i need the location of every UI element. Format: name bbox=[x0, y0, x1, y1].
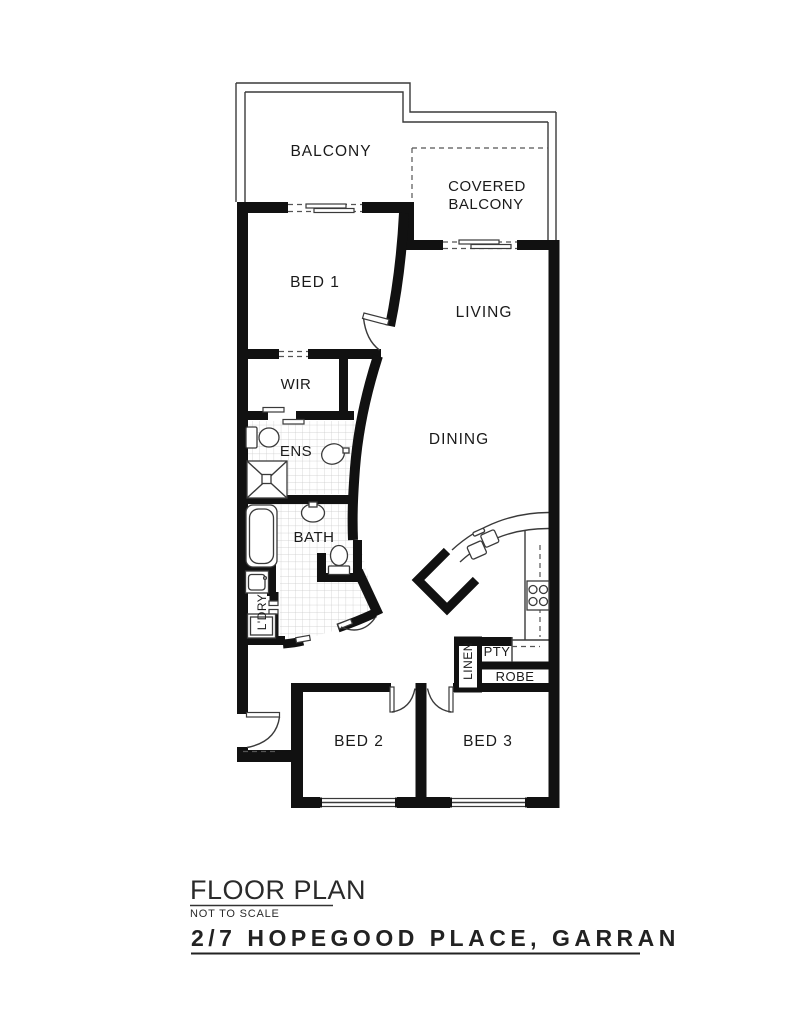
label-wir: WIR bbox=[281, 376, 312, 393]
label-linen: LINEN bbox=[461, 642, 475, 680]
ens-slider-panel bbox=[283, 420, 304, 425]
label-ens: ENS bbox=[280, 443, 312, 460]
scale-note: NOT TO SCALE bbox=[190, 908, 280, 920]
label-living: LIVING bbox=[456, 304, 513, 321]
balcony-slider-panel bbox=[306, 204, 346, 208]
bed3-door-arc bbox=[428, 689, 452, 713]
balcony-slider-panel bbox=[314, 209, 354, 213]
address-title: 2/7 HOPEGOOD PLACE, GARRAN bbox=[191, 925, 680, 951]
ens-slider-panel bbox=[263, 408, 284, 413]
page-title: FLOOR PLAN bbox=[190, 875, 366, 905]
label-pty: PTY bbox=[484, 644, 511, 659]
bed2-door-arc bbox=[392, 689, 415, 713]
entry-door-arc bbox=[247, 717, 280, 748]
kitchen-bench bbox=[452, 513, 549, 647]
bath-toilet bbox=[329, 546, 350, 575]
ens-toilet bbox=[246, 427, 279, 448]
bed2-door-leaf bbox=[390, 687, 394, 712]
curved-wall-bed1 bbox=[390, 213, 404, 326]
label-covered-balcony-1: COVERED bbox=[448, 178, 526, 195]
bathtub bbox=[246, 505, 277, 567]
label-dining: DINING bbox=[429, 431, 489, 448]
footer: FLOOR PLAN NOT TO SCALE 2/7 HOPEGOOD PLA… bbox=[190, 875, 680, 954]
ldry-door-mark bbox=[269, 601, 278, 606]
window-end bbox=[395, 798, 400, 808]
living-slider-panel bbox=[459, 240, 499, 244]
window-end bbox=[317, 798, 322, 808]
bed3-door-leaf bbox=[449, 687, 453, 712]
room-labels: BALCONY COVERED BALCONY BED 1 LIVING WIR… bbox=[255, 143, 534, 750]
laundry-sink bbox=[246, 571, 269, 593]
label-bed3: BED 3 bbox=[463, 733, 513, 750]
curved-wall-hall bbox=[353, 356, 378, 540]
kitchen-island-walls bbox=[418, 551, 476, 609]
floor-plan-page: BALCONY COVERED BALCONY BED 1 LIVING WIR… bbox=[0, 0, 792, 1024]
entry-door-leaf bbox=[247, 713, 280, 718]
label-robe: ROBE bbox=[496, 669, 535, 684]
cooktop bbox=[527, 581, 549, 610]
label-bed1: BED 1 bbox=[290, 274, 340, 291]
ldry-door-mark bbox=[269, 610, 278, 615]
floor-plan-drawing: BALCONY COVERED BALCONY BED 1 LIVING WIR… bbox=[0, 0, 792, 1024]
living-slider-panel bbox=[471, 245, 511, 249]
window-end bbox=[525, 798, 530, 808]
label-balcony: BALCONY bbox=[290, 143, 371, 160]
label-covered-balcony-2: BALCONY bbox=[448, 196, 523, 213]
window-end bbox=[447, 798, 452, 808]
bed1-door-leaf bbox=[363, 313, 390, 325]
label-bath: BATH bbox=[294, 529, 335, 546]
label-bed2: BED 2 bbox=[334, 733, 384, 750]
balcony-railing bbox=[236, 83, 556, 240]
label-ldry: L'DRY bbox=[255, 594, 269, 631]
shower bbox=[247, 461, 287, 498]
